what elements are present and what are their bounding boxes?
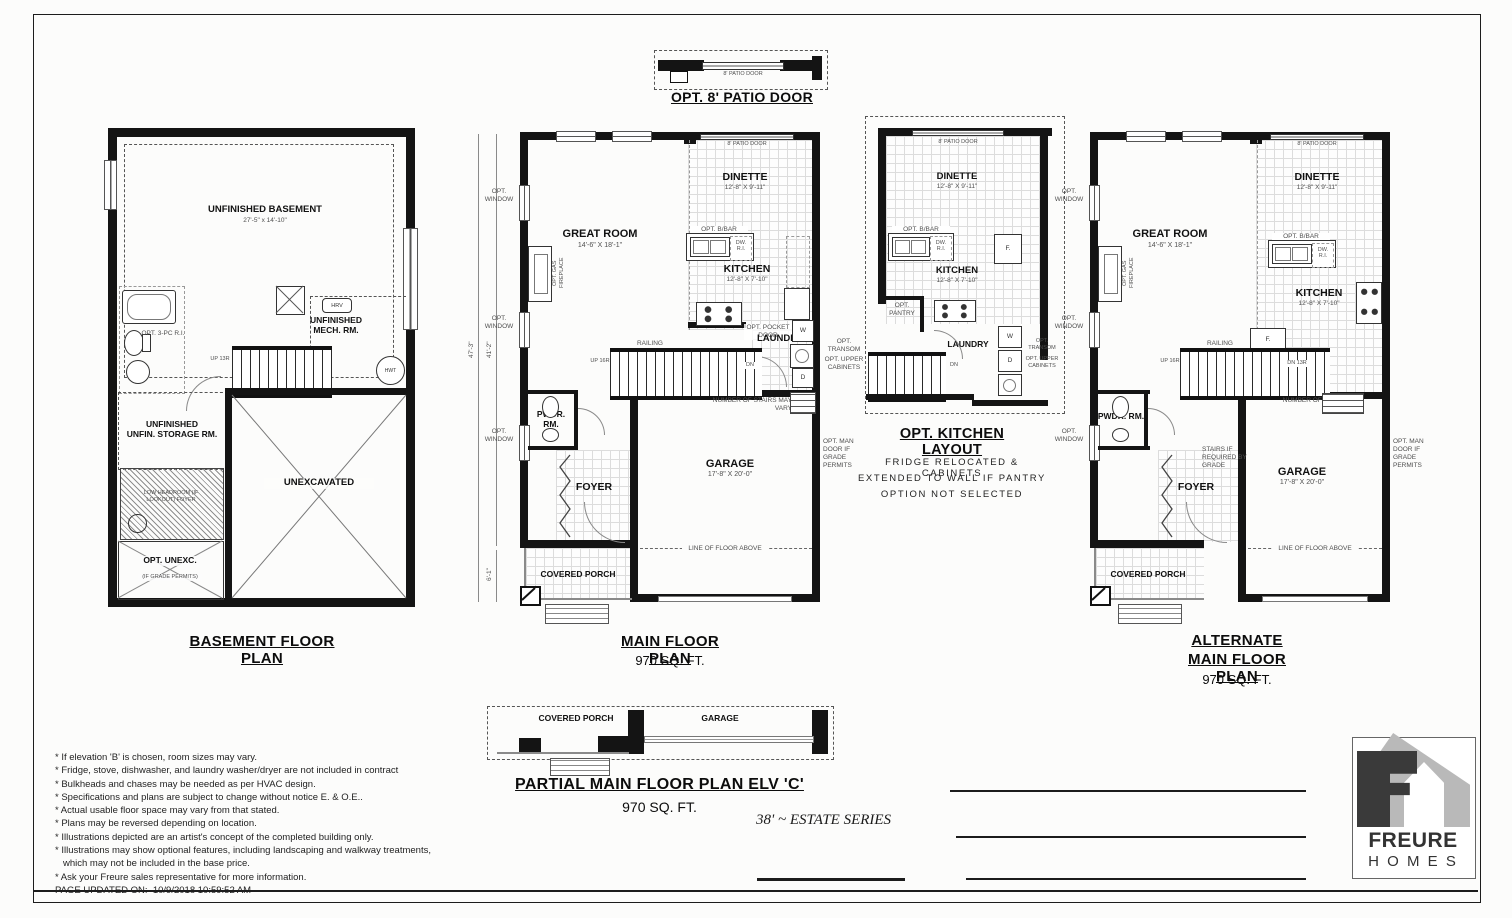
main-kitchen-label: KITCHEN [712,264,782,276]
main-stairs-vary: NUMBER OF STAIRS MAY VARY [698,397,792,413]
alt-line-floor-above-label: LINE OF FLOOR ABOVE [1272,545,1358,553]
dim-line-6 [496,550,497,602]
floorplan-sheet: 8' PATIO DOOR OPT. 8' PATIO DOOR UNFINIS… [0,0,1512,918]
partial-column-left [628,710,644,754]
dim-6-label: 6'-1" [486,560,494,590]
note-line: * Ask your Freure sales representative f… [55,871,431,884]
unexc-x [232,395,406,598]
note-line: * Bulkheads and chases may be needed as … [55,778,431,791]
note-line: * Illustrations depicted are an artist's… [55,831,431,844]
main-pwdr-wall-bottom [528,446,578,450]
series-label: 38' ~ ESTATE SERIES [756,812,936,829]
opt-unexc-label: OPT. UNEXC. [140,556,200,566]
optk-title: OPT. KITCHEN LAYOUT [870,426,1034,458]
main-dinette-label: DINETTE [710,172,780,184]
alt-window-top-2 [1182,131,1222,142]
main-window-left-1 [519,185,530,221]
main-opt-window-3: OPT. WINDOW [482,428,516,444]
patio-detail-jamb [670,71,688,83]
alt-patio-door-label: 8' PATIO DOOR [1284,141,1350,148]
unexc-wall-top [225,388,415,395]
optk-patio-door-label: 8' PATIO DOOR [926,139,990,146]
unexcavated-label: UNEXCAVATED [264,478,374,489]
optk-opt-upper-cab: OPT. UPPER CABINETS [1022,356,1062,370]
signature-line-3 [966,878,1306,880]
alt-title-1: ALTERNATE [1178,632,1296,649]
main-fireplace-label: OPT. GAS FIREPLACE [552,246,566,300]
bsmt-mech-partition-h [310,296,406,297]
note-line: * Actual usable floor space may vary fro… [55,804,431,817]
disclaimer-notes: * If elevation 'B' is chosen, room sizes… [55,751,431,897]
alt-dinette-dim: 12'-8" X 9'-11" [1284,184,1350,192]
bsmt-mech-label: UNFINISHED MECH. RM. [296,316,376,335]
partial-steps [550,758,610,776]
main-up-label: UP 16R [590,358,610,365]
main-sink-bowl-1 [693,240,709,254]
main-stove [696,302,742,326]
main-wall-jog [684,132,696,144]
low-headroom-label: LOW HEADROOM (IF LOOKOUT) FOYER [132,490,210,504]
optk-dinette-dim: 12'-8" X 9'-11" [924,183,990,191]
alt-garage-wall-left [1238,392,1246,602]
optk-stove [934,300,976,322]
main-window-left-3 [519,425,530,461]
alt-stairs-grade: STAIRS IF REQUIRED BY GRADE [1202,446,1262,470]
sump-pump [128,514,147,533]
main-window-left-2 [519,312,530,348]
optk-caption-3: OPTION NOT SELECTED [856,490,1048,501]
patio-detail-wall-left [658,60,704,71]
alt-stairs [1180,348,1330,400]
main-dinette-dim: 12'-8" X 9'-11" [712,184,778,192]
optk-wall-left [878,128,886,304]
main-sqft: 970 SQ. FT. [620,653,720,668]
unexc-wall-left [225,388,232,607]
main-porch-post-x [520,586,537,602]
alt-pwdr-toilet [1112,396,1129,418]
alt-stove [1356,282,1382,324]
dim-41-label: 41'-2" [486,330,494,370]
partial-title: PARTIAL MAIN FLOOR PLAN ELV 'C' [487,776,832,794]
alt-dn-label: DN 13R [1286,360,1308,367]
main-opt-upper-cab: OPT. UPPER CABINETS [822,356,866,372]
alt-pwdr-wall-top [1098,390,1150,394]
optk-washer: W [998,326,1022,348]
main-washer: W [792,320,814,342]
optk-pantry-wall-top [878,296,924,300]
main-window-top-2 [612,131,652,142]
alt-garage-dim: 17'-8" X 20'-0" [1264,479,1340,488]
main-pwdr-toilet [542,396,559,418]
patio-door-inner-label: 8' PATIO DOOR [706,71,780,78]
optk-wall-bottom-2 [972,400,1048,406]
opt-3pc-label: OPT. 3-PC R.I. [138,330,188,338]
alt-garage-door [1262,596,1368,602]
storage-label-2: UNFIN. STORAGE RM. [122,430,222,440]
alt-kitchen-label: KITCHEN [1284,288,1354,300]
alt-opt-window-2: OPT. WINDOW [1052,315,1086,331]
main-pantry-cab [784,288,810,320]
partial-garage-door [644,736,814,743]
main-dw-ri: DW. R.I. [730,236,752,261]
optk-dryer: D [998,350,1022,372]
page-updated-value: 10/9/2018 10:59:52 AM [153,885,251,896]
partial-porch-edge [497,752,629,754]
optk-dw-ri: DW. R.I. [930,236,952,261]
opt-unexc-sub: (IF GRADE PERMITS) [138,574,202,581]
main-sink-bowl-2 [710,240,726,254]
note-line: * If elevation 'B' is chosen, room sizes… [55,751,431,764]
partial-garage-label: GARAGE [680,714,760,724]
partial-porch-label: COVERED PORCH [528,714,624,724]
alt-wall-porchline [1090,540,1204,548]
optk-sink-bowl-1 [895,240,910,254]
main-kitchen-dim: 12'-8" X 7'-10" [714,276,780,284]
optk-fridge: F. [994,234,1022,264]
main-great-label: GREAT ROOM [540,228,660,240]
main-pwdr-sink [542,428,559,442]
alt-closet-zigzag [1160,455,1174,539]
alt-garage-label: GARAGE [1262,466,1342,478]
hwt-tank: HWT [376,356,405,385]
partial-post-1 [519,738,541,752]
basement-title: BASEMENT FLOOR PLAN [178,633,346,667]
alt-dinette-label: DINETTE [1282,172,1352,184]
optk-pantry-wall-right [920,296,924,332]
optk-pantry-label: OPT. PANTRY [884,302,920,318]
main-dn-label: DN [742,362,758,369]
main-patio-door [700,134,794,140]
alt-sink-bowl-1 [1275,247,1291,261]
optk-opt-transom: OPT. TRANSOM [1024,338,1060,352]
patio-detail-title: OPT. 8' PATIO DOOR [664,89,820,105]
alt-window-left-3 [1089,425,1100,461]
optk-patio-door [912,130,1004,136]
main-garage-wall-left [630,390,638,602]
patio-door-glass [702,62,784,70]
main-window-top-1 [556,131,596,142]
note-line: * Illustrations may show optional featur… [55,844,431,857]
optk-sink-bowl-2 [911,240,926,254]
alt-pwdr-sink [1112,428,1129,442]
bsmt-wall-top [108,128,415,137]
furnace-x [276,286,303,313]
optk-dn-label: DN [946,362,962,369]
hrv-unit: HRV [322,298,352,313]
alt-patio-door [1270,134,1364,140]
alt-wall-right [1382,132,1390,602]
note-line: * Specifications and plans are subject t… [55,791,431,804]
alt-sink-bowl-2 [1292,247,1308,261]
main-stairs [610,348,762,400]
optk-wall-right [1040,136,1048,360]
logo-brand: FREURE [1354,829,1472,853]
main-dryer: D [792,368,814,388]
alt-fireplace-label: OPT. GAS FIREPLACE [1122,246,1136,300]
bathtub-inner [127,294,171,320]
opt-unexc-x [118,541,222,598]
alt-window-left-1 [1089,185,1100,221]
optk-kitchen-label: KITCHEN [922,266,992,277]
bsmt-wall-right [406,128,415,607]
alt-fireplace-inner [1104,254,1118,294]
main-opt-transom: OPT. TRANSOM [824,338,864,354]
alt-dw-ri: DW. R.I. [1312,243,1334,268]
alt-porch-post-x [1090,586,1107,602]
main-patio-door-label: 8' PATIO DOOR [714,141,780,148]
main-closet-zigzag [558,455,572,539]
note-line: * Plans may be reversed depending on loc… [55,817,431,830]
signature-line-short [757,878,905,881]
alt-flush-beam [1255,140,1258,350]
alt-up-label: UP 16R [1160,358,1180,365]
main-line-floor-above-label: LINE OF FLOOR ABOVE [682,545,768,553]
alt-porch-steps [1118,604,1182,624]
alt-railing-label: RAILING [1198,340,1242,348]
alt-porch-label: COVERED PORCH [1100,570,1196,580]
partial-column-right [812,710,828,754]
alt-entry-steps [1322,393,1364,414]
main-garage-label: GARAGE [690,458,770,470]
optk-caption-2: EXTENDED TO WALL IF PANTRY [856,474,1048,485]
logo-sub: H O M E S [1354,853,1472,870]
signature-line-2 [956,836,1306,838]
shower-ri [126,360,150,384]
main-cabinet [786,236,810,288]
alt-great-label: GREAT ROOM [1110,228,1230,240]
main-garage-door [658,596,792,602]
alt-window-top-1 [1126,131,1166,142]
main-fireplace-inner [534,254,548,294]
main-opt-window-1: OPT. WINDOW [482,188,516,204]
signature-line-1 [950,790,1306,792]
main-opt-window-2: OPT. WINDOW [482,315,516,331]
partial-post-2 [598,736,628,753]
optk-dinette-label: DINETTE [922,172,992,183]
note-line: * Fridge, stove, dishwasher, and laundry… [55,764,431,777]
bsmt-room-dim: 27'-5" x 14'-10" [220,217,310,225]
alt-sqft: 970 SQ. FT. [1187,672,1287,687]
main-railing-label: RAILING [628,340,672,348]
optk-wall-bottom-1 [866,394,974,400]
main-garage-dim: 17'-8" X 20'-0" [692,471,768,480]
dim-47-label: 47'-3" [468,330,476,370]
alt-window-left-2 [1089,312,1100,348]
bsmt-window-left [104,160,117,210]
main-great-dim: 14'-6" X 18'-1" [560,242,640,251]
patio-detail-corner [812,56,822,80]
alt-opt-man-door: OPT. MAN DOOR IF GRADE PERMITS [1393,438,1441,471]
alt-opt-window-1: OPT. WINDOW [1052,188,1086,204]
main-pwdr-wall-top [528,390,578,394]
page-updated-label: PAGE UPDATED ON: [55,885,148,896]
main-porch-steps [545,604,609,624]
alt-pwdr-wall-bottom [1098,446,1150,450]
page-updated: PAGE UPDATED ON: 10/9/2018 10:59:52 AM [55,884,431,897]
bsmt-up-label: UP 13R [210,356,230,363]
bsmt-room-label: UNFINISHED BASEMENT [200,205,330,216]
alt-great-dim: 14'-6" X 18'-1" [1130,242,1210,251]
alt-opt-window-3: OPT. WINDOW [1052,428,1086,444]
optk-laundry-tub-drain [1003,379,1016,392]
main-entry-steps [790,392,816,414]
main-laundry-tub-drain [795,349,809,363]
dim-line-47 [478,134,479,602]
optk-kitchen-dim: 12'-8" X 7'-10" [924,277,990,285]
bsmt-window-right [403,228,418,330]
alt-kitchen-dim: 12'-8" X 7'-10" [1286,300,1352,308]
note-line: which may not be included in the base pr… [55,857,431,870]
main-porch-label: COVERED PORCH [530,570,626,580]
